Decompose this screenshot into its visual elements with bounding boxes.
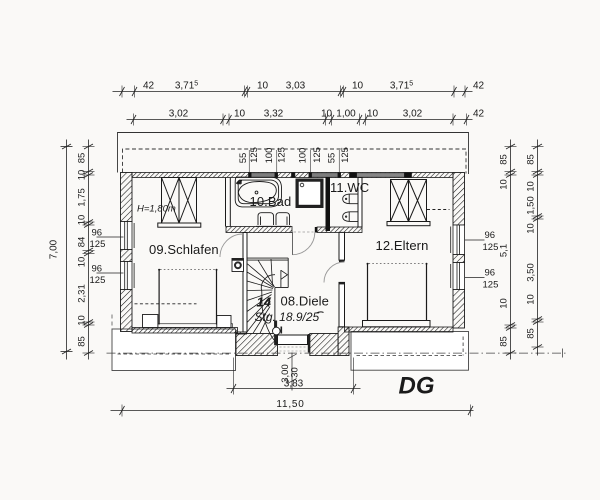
svg-text:85: 85: [499, 154, 510, 165]
svg-text:96: 96: [485, 268, 496, 279]
svg-text:45: 45: [237, 180, 243, 185]
svg-text:2,31: 2,31: [77, 284, 88, 303]
svg-text:5,1: 5,1: [499, 244, 510, 257]
svg-text:85: 85: [526, 328, 537, 339]
svg-text:96: 96: [485, 230, 496, 241]
svg-text:42: 42: [143, 81, 155, 92]
svg-text:08.Diele: 08.Diele: [281, 294, 330, 309]
svg-text:100: 100: [298, 148, 309, 164]
svg-text:1,50: 1,50: [526, 196, 537, 215]
svg-text:125: 125: [340, 147, 351, 163]
svg-text:10: 10: [367, 109, 379, 120]
svg-text:10: 10: [77, 215, 88, 226]
svg-text:10: 10: [526, 181, 537, 192]
svg-text:3,02: 3,02: [403, 109, 423, 120]
svg-text:10: 10: [352, 81, 364, 92]
svg-text:10: 10: [257, 81, 269, 92]
svg-text:10.Bad: 10.Bad: [250, 194, 292, 209]
svg-text:H=1,80m: H=1,80m: [137, 204, 176, 215]
svg-text:84: 84: [77, 237, 88, 248]
svg-text:55: 55: [327, 153, 338, 164]
svg-text:10: 10: [499, 298, 510, 309]
svg-text:10: 10: [77, 257, 88, 268]
svg-text:1,75: 1,75: [77, 188, 88, 207]
svg-text:3,715: 3,715: [390, 81, 413, 92]
svg-text:10: 10: [234, 109, 246, 120]
svg-text:11,50: 11,50: [276, 399, 304, 410]
svg-text:1,00: 1,00: [336, 109, 356, 120]
svg-text:10: 10: [526, 223, 537, 234]
svg-text:10: 10: [499, 179, 510, 190]
svg-text:3,02: 3,02: [169, 109, 189, 120]
svg-text:10: 10: [321, 109, 333, 120]
svg-text:85: 85: [499, 336, 510, 347]
svg-text:125: 125: [483, 280, 499, 291]
svg-text:Stg. 18.9/25: Stg. 18.9/25: [255, 310, 320, 324]
svg-text:125: 125: [90, 275, 106, 286]
svg-text:3,715: 3,715: [175, 81, 198, 92]
svg-text:3,03: 3,03: [286, 81, 306, 92]
svg-text:42: 42: [473, 81, 485, 92]
svg-text:85: 85: [77, 153, 88, 164]
svg-text:3,32: 3,32: [264, 109, 284, 120]
svg-text:100: 100: [264, 148, 275, 164]
svg-text:55: 55: [238, 153, 249, 164]
svg-text:125: 125: [277, 147, 288, 163]
svg-text:85: 85: [77, 336, 88, 347]
svg-text:96: 96: [92, 228, 103, 239]
svg-text:11.WC: 11.WC: [330, 180, 369, 195]
svg-text:3,83: 3,83: [284, 379, 304, 390]
svg-text:30: 30: [290, 367, 301, 378]
svg-text:10: 10: [77, 315, 88, 326]
svg-text:3,50: 3,50: [526, 263, 537, 282]
svg-text:DG: DG: [399, 373, 435, 400]
svg-text:42: 42: [473, 109, 485, 120]
svg-text:12.Eltern: 12.Eltern: [376, 238, 429, 253]
svg-text:125: 125: [483, 242, 499, 253]
svg-text:85: 85: [526, 154, 537, 165]
svg-text:10: 10: [77, 170, 88, 181]
svg-text:14: 14: [257, 295, 272, 310]
svg-text:125: 125: [90, 239, 106, 250]
svg-text:09.Schlafen: 09.Schlafen: [149, 242, 219, 257]
svg-text:125: 125: [249, 147, 260, 163]
svg-text:125: 125: [312, 147, 323, 163]
svg-text:96: 96: [92, 264, 103, 275]
svg-text:10: 10: [526, 294, 537, 305]
svg-text:7,00: 7,00: [49, 239, 60, 259]
